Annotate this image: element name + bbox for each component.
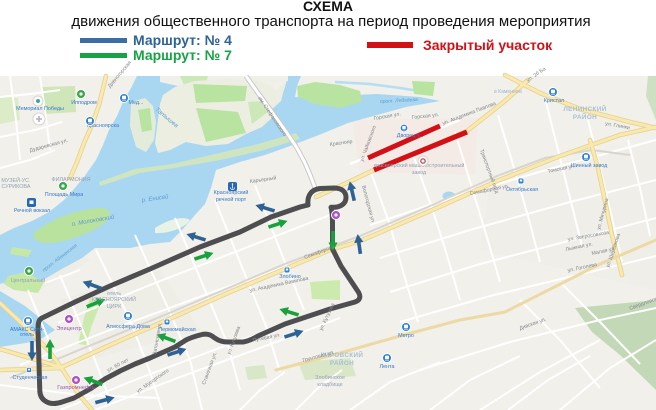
svg-text:Шинный завод: Шинный завод — [571, 162, 608, 169]
svg-text:Атмосфера Дома: Атмосфера Дома — [106, 324, 150, 330]
svg-text:РАЙОН: РАЙОН — [330, 358, 354, 367]
svg-text:Эпицентр: Эпицентр — [56, 326, 81, 332]
svg-text:завод: завод — [412, 170, 427, 176]
svg-text:кладбище: кладбище — [317, 382, 342, 388]
svg-text:Площадь Мира: Площадь Мира — [45, 192, 83, 198]
svg-text:речной порт: речной порт — [216, 196, 247, 203]
svg-text:Мед...: Мед... — [128, 100, 143, 106]
svg-text:отель: отель — [20, 332, 34, 338]
svg-text:Кристал: Кристал — [544, 98, 564, 104]
svg-text:Газпромнефть: Газпромнефть — [57, 385, 95, 391]
svg-text:Центральный: Центральный — [11, 277, 45, 284]
svg-text:ЛЕНИНСКИЙ: ЛЕНИНСКИЙ — [563, 104, 606, 113]
svg-text:СУРИКОВА: СУРИКОВА — [2, 184, 31, 190]
svg-text:Лента: Лента — [380, 364, 395, 370]
svg-text:Речной вокзал: Речной вокзал — [14, 207, 50, 214]
svg-text:ЦИРК: ЦИРК — [107, 304, 122, 310]
svg-text:Октябрьская: Октябрьская — [506, 187, 538, 193]
svg-text:Ипподром: Ипподром — [71, 100, 97, 106]
svg-text:Дворец т...: Дворец т... — [397, 133, 423, 139]
svg-text:ФИЛАРМОНИЯ: ФИЛАРМОНИЯ — [52, 177, 91, 183]
svg-text:РАЙОН: РАЙОН — [573, 112, 597, 121]
svg-text:Пермомайская: Пермомайская — [158, 326, 195, 333]
svg-text:МУЗЕЙ-УС.: МУЗЕЙ-УС. — [1, 176, 30, 184]
svg-text:Студенческая: Студенческая — [13, 375, 48, 381]
svg-text:Метро: Метро — [398, 333, 414, 339]
svg-text:в Каменном: в Каменном — [494, 89, 522, 95]
svg-text:Злобинское: Злобинское — [315, 375, 345, 381]
svg-text:КРАСНОЯРСКИЙ: КРАСНОЯРСКИЙ — [92, 295, 136, 303]
svg-text:Мемориал Победы: Мемориал Победы — [16, 106, 64, 112]
